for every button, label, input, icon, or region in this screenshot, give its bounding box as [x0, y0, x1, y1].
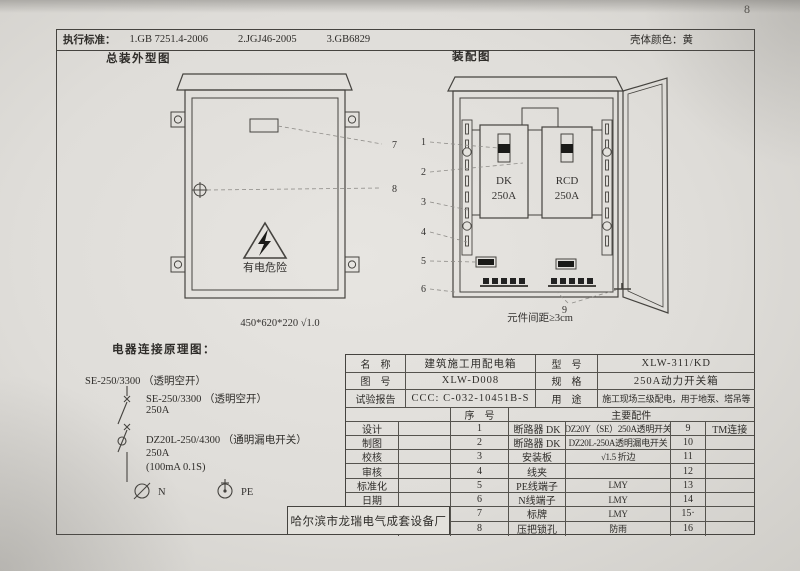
part-spec: LMY: [566, 479, 671, 493]
part-name: 断路器 DK: [509, 422, 566, 436]
part-name: 线夹: [509, 464, 566, 478]
sign-label-draft: 制图: [346, 436, 399, 450]
parts-header: 主要配件: [509, 408, 754, 422]
standards-bar: 执行标准： 1.GB 7251.4-2006 2.JGJ46-2005 3.GB…: [56, 29, 755, 51]
report-value: CCC: C-032-10451B-S: [406, 390, 536, 408]
sign-label-standardize: 标准化: [346, 479, 399, 493]
part-spec2: [706, 464, 754, 478]
shell-color-label: 壳体颜色：: [630, 32, 683, 47]
assembly-caption: 元件间距≥3cm: [507, 311, 573, 324]
breaker1-model: SE-250/3300 （透明空开）: [146, 391, 267, 406]
leader-7: 7: [392, 140, 397, 151]
model-value: XLW-311/KD: [598, 355, 755, 373]
outline-drawing: 7 8 有电危险 450*620*220 √1.0: [130, 60, 420, 335]
part-no2: 15·: [671, 507, 706, 521]
outline-dimensions: 450*620*220 √1.0: [240, 317, 319, 329]
part-name: 断路器 DK: [509, 436, 566, 450]
right-slotted-strip: [602, 120, 612, 255]
signature-cell: [399, 450, 451, 464]
breaker2-rating: 250A: [146, 448, 169, 459]
incoming-breaker-label: SE-250/3300 （透明空开）: [85, 373, 206, 388]
breaker2-params: (100mA 0.1S): [146, 462, 206, 473]
wiring-lines: [472, 130, 602, 215]
pe-terminal-fill: [478, 259, 494, 265]
signature-cell: [399, 436, 451, 450]
pe-label: PE: [241, 487, 253, 498]
part-spec: 防雨: [566, 522, 671, 536]
signature-cell: [399, 464, 451, 478]
assembly-leader-1: 1: [421, 137, 426, 148]
n-terminal-fill: [558, 261, 574, 267]
sign-label-review: 审核: [346, 464, 399, 478]
pe-symbol-icon: [218, 479, 232, 498]
open-door: [623, 78, 668, 313]
part-no: 6: [451, 493, 509, 507]
leader-line-7: [278, 126, 382, 144]
terminal-row-right: [548, 278, 596, 286]
open-door-inner: [628, 84, 663, 307]
part-spec2: TM连接: [706, 422, 754, 436]
seq-header: 序 号: [451, 408, 509, 422]
drawing-no-label: 图 号: [346, 373, 406, 391]
sign-label-design: 设计: [346, 422, 399, 436]
part-no2: 12: [671, 464, 706, 478]
part-spec: [566, 464, 671, 478]
standard-3: 3.GB6829: [327, 34, 370, 45]
busbar-loop: [522, 108, 558, 127]
warning-text: 有电危险: [243, 260, 287, 274]
part-name: 压把锁孔: [509, 522, 566, 536]
part-no2: 14: [671, 493, 706, 507]
name-label: 名 称: [346, 355, 406, 373]
nameplate: [250, 119, 278, 132]
part-no: 1: [451, 422, 509, 436]
assembly-roof: [448, 77, 623, 91]
part-spec2: [706, 479, 754, 493]
breaker2-symbol-icon: [118, 424, 130, 452]
assembly-leader-3: 3: [421, 197, 426, 208]
breaker-dk-handle-band: [498, 144, 510, 153]
manufacturer-name: 哈尔滨市龙瑞电气成套设备厂: [287, 506, 450, 535]
name-value: 建筑施工用配电箱: [406, 355, 536, 373]
assembly-leader-4: 4: [421, 227, 426, 238]
terminal-row-left: [480, 278, 528, 286]
part-no2: 11: [671, 450, 706, 464]
left-slotted-strip: [462, 120, 472, 255]
breaker2-model: DZ20L-250/4300 （通明漏电开关）: [146, 432, 307, 447]
part-spec2: [706, 436, 754, 450]
title-block-header-rows: 名 称 建筑施工用配电箱 型 号 XLW-311/KD 图 号 XLW-D008…: [346, 355, 754, 408]
report-label: 试验报告: [346, 390, 406, 408]
signature-cell: [399, 422, 451, 436]
breaker-dk-rating: 250A: [492, 190, 517, 202]
assembly-body: [453, 91, 618, 297]
part-no: 3: [451, 450, 509, 464]
breaker-rcd-handle-band: [561, 144, 573, 153]
model-label: 型 号: [536, 355, 598, 373]
part-spec2: [706, 507, 754, 521]
schematic-title: 电器连接原理图：: [112, 341, 216, 357]
part-spec: LMY: [566, 507, 671, 521]
part-spec: √1.5 折边: [566, 450, 671, 464]
part-name: 安装板: [509, 450, 566, 464]
standards-label: 执行标准：: [63, 32, 116, 47]
part-name: N线端子: [509, 493, 566, 507]
breaker-rcd: [542, 127, 592, 218]
breaker1-rating: 250A: [146, 405, 169, 416]
part-no: 7: [451, 507, 509, 521]
part-name: PE线端子: [509, 479, 566, 493]
spec-value: 250A动力开关箱: [598, 373, 755, 391]
drawing-no-value: XLW-D008: [406, 373, 536, 391]
lock-icon: [192, 182, 208, 198]
use-label: 用 途: [536, 390, 598, 408]
part-no2: 9: [671, 422, 706, 436]
empty-cell: [346, 408, 451, 422]
leader-8: 8: [392, 184, 397, 195]
part-no: 2: [451, 436, 509, 450]
part-spec: DZ20L-250A透明漏电开关: [566, 436, 671, 450]
assembly-leader-6: 6: [421, 284, 426, 295]
door-latch: [614, 283, 631, 289]
cabinet-roof: [177, 74, 352, 90]
part-no: 8: [451, 522, 509, 536]
pe-center-dot: [223, 489, 226, 492]
standard-1: 1.GB 7251.4-2006: [130, 34, 208, 45]
part-spec2: [706, 522, 754, 536]
n-label: N: [158, 487, 166, 498]
part-no2: 16: [671, 522, 706, 536]
part-spec2: [706, 493, 754, 507]
assembly-leader-2: 2: [421, 167, 426, 178]
parts-header-row: 序 号 主要配件: [346, 408, 754, 422]
page-number: 8: [744, 2, 750, 17]
use-value: 施工现场三级配电，用于地泵、塔吊等: [598, 390, 755, 408]
assembly-drawing: 1 2 3 4 5 6 9 DK 250A RCD 250A 元件间距≥3cm: [410, 60, 710, 330]
signature-cell: [399, 479, 451, 493]
lightning-bolt-icon: [258, 229, 271, 256]
part-spec2: [706, 450, 754, 464]
shell-color-value: 黄: [683, 32, 694, 47]
breaker1-symbol-icon: [118, 396, 130, 424]
n-symbol-icon: [134, 483, 150, 499]
part-name: 标牌: [509, 507, 566, 521]
assembly-leader-5: 5: [421, 256, 426, 267]
breaker-rcd-rating: 250A: [555, 190, 580, 202]
part-no: 4: [451, 464, 509, 478]
leader-line-8: [207, 188, 382, 190]
breaker-dk-label: DK: [496, 175, 512, 187]
part-no: 5: [451, 479, 509, 493]
part-spec: DZ20Y（SE）250A透明开关: [566, 422, 671, 436]
part-no2: 13: [671, 479, 706, 493]
spec-label: 规 格: [536, 373, 598, 391]
standard-2: 2.JGJ46-2005: [238, 34, 297, 45]
part-no2: 10: [671, 436, 706, 450]
sign-label-check: 校核: [346, 450, 399, 464]
part-spec: LMY: [566, 493, 671, 507]
breaker-dk: [480, 125, 528, 218]
breaker-rcd-label: RCD: [556, 175, 579, 187]
shell-color: 壳体颜色： 黄: [630, 32, 693, 47]
